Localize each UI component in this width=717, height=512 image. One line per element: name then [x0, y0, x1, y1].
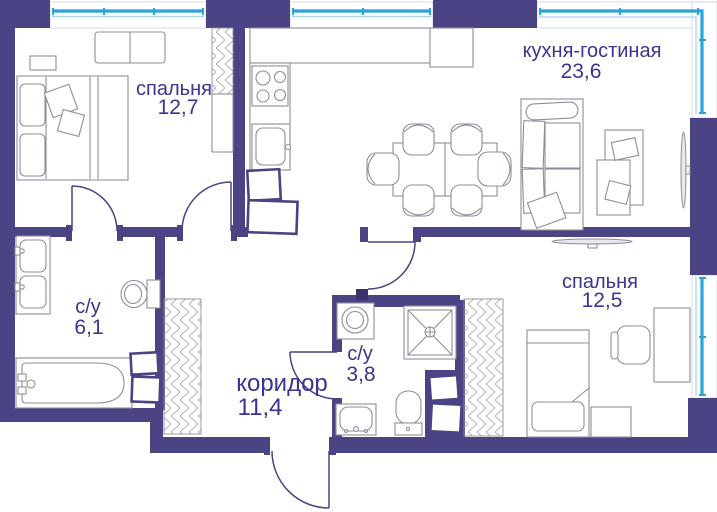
window-bedroom2: [692, 275, 717, 398]
dresser: [95, 32, 165, 63]
double-bed: [17, 76, 128, 180]
door-living: [368, 242, 415, 289]
coffee-tables: [597, 130, 643, 215]
built-in-wardrobe-corridor: [164, 299, 201, 434]
room-label-bedroom2: спальня 12,5: [562, 271, 638, 312]
bench: [30, 56, 56, 70]
built-in-wardrobe-bedroom1: [212, 28, 233, 152]
washing-machine: [337, 303, 374, 339]
floor-plan: спальня 12,7 кухня-гостиная 23,6 с/у 6,1…: [0, 0, 717, 512]
stove: [252, 66, 288, 106]
room-area: 12,5: [582, 289, 623, 312]
tv-bedroom2: [552, 239, 632, 248]
room-name: коридор: [236, 370, 328, 397]
entrance-door: [272, 451, 329, 508]
kitchen-sink: [252, 124, 291, 170]
desk-chair: [611, 326, 650, 364]
room-area: 12,7: [158, 96, 199, 119]
room-name: с/у: [347, 343, 373, 365]
room-label-bathroom1: с/у 6,1: [74, 296, 103, 339]
shower-cabin: [404, 306, 456, 359]
vent-shaft: [356, 289, 368, 300]
room-label-bathroom2: с/у 3,8: [346, 343, 375, 386]
single-bed: [527, 330, 589, 437]
window-kitchen: [290, 2, 433, 28]
room-label-kitchen-living: кухня-гостиная 23,6: [523, 40, 662, 83]
room-area: 3,8: [346, 363, 375, 386]
door-bathroom1: [72, 186, 117, 231]
room-area: 11,4: [238, 394, 283, 421]
shaft-cabinet: [429, 375, 462, 433]
toilet-bathroom2: [395, 391, 422, 435]
room-label-bedroom1: спальня 12,7: [136, 78, 212, 119]
room-name: кухня-гостиная: [523, 40, 662, 62]
double-sink-vanity: [15, 236, 50, 314]
tv-living: [681, 132, 690, 208]
room-name: с/у: [75, 296, 101, 318]
bathtub: [16, 358, 132, 408]
corridor-furniture: [164, 299, 201, 434]
nightstand: [591, 407, 631, 437]
door-bedroom1: [182, 182, 231, 231]
room-area: 23,6: [561, 60, 602, 83]
window-bedroom1: [50, 2, 206, 28]
bedroom1-furniture: [17, 28, 233, 180]
desk: [654, 308, 690, 382]
room-area: 6,1: [74, 316, 103, 339]
bedroom2-furniture: [464, 239, 690, 437]
sink-bathroom2: [336, 404, 376, 435]
built-in-wardrobe-bedroom2: [464, 299, 503, 436]
room-label-corridor: коридор 11,4: [236, 370, 328, 421]
sofa: [521, 99, 583, 230]
bath-cabinet: [130, 352, 160, 402]
toilet-bathroom1: [121, 280, 160, 308]
